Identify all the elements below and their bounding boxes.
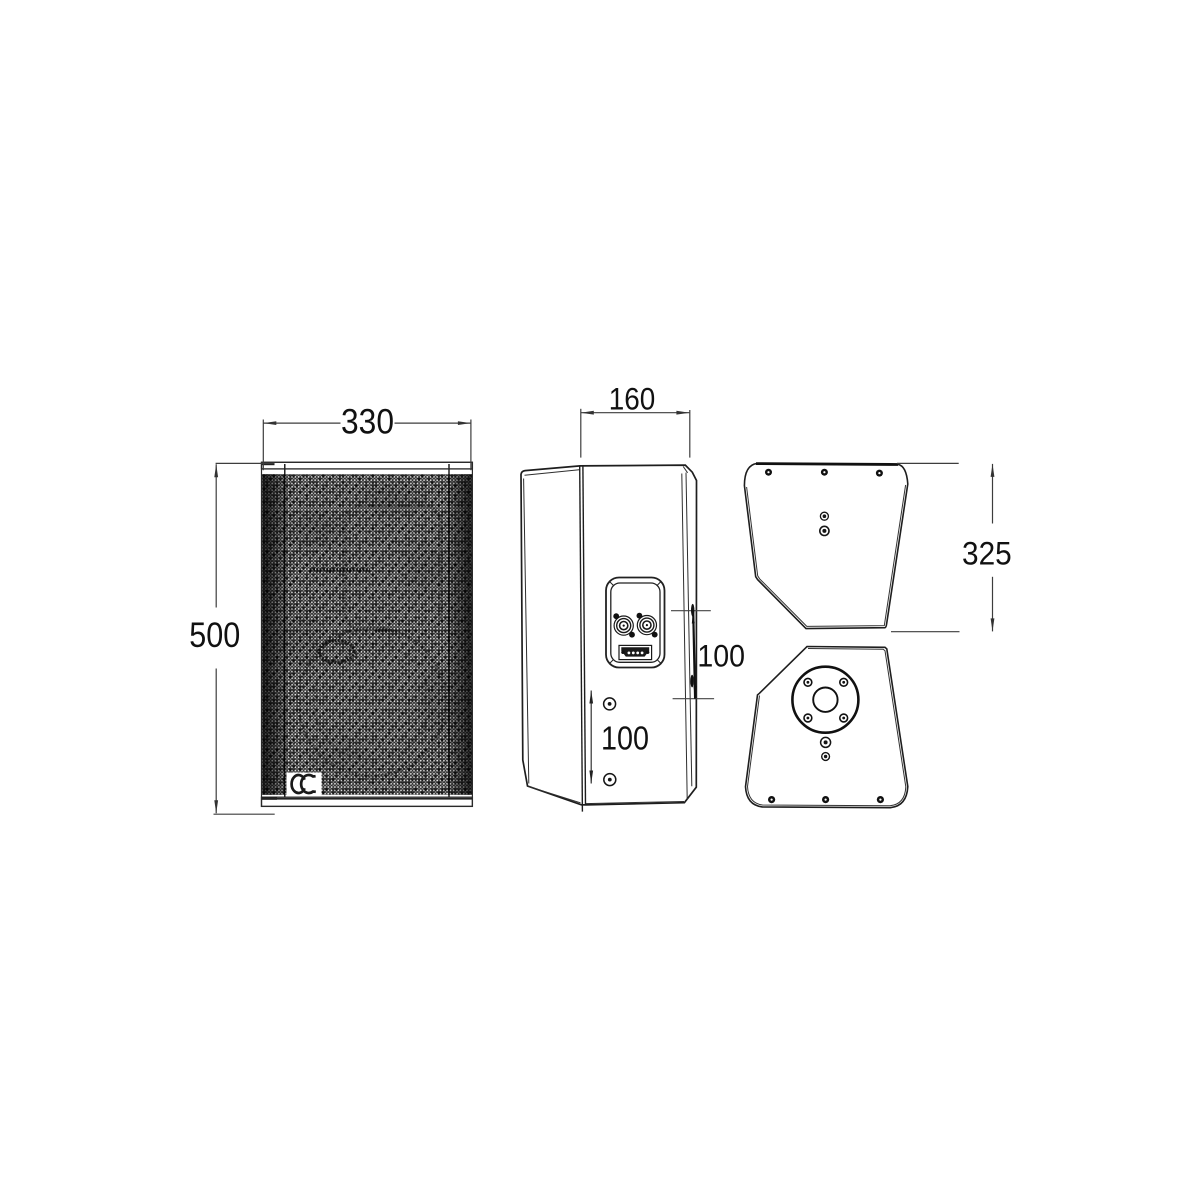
- svg-text:100: 100: [697, 638, 745, 674]
- svg-text:325: 325: [962, 536, 1012, 572]
- svg-text:330: 330: [341, 403, 394, 442]
- svg-text:500: 500: [189, 616, 240, 655]
- svg-text:100: 100: [601, 721, 649, 758]
- svg-text:160: 160: [609, 381, 656, 417]
